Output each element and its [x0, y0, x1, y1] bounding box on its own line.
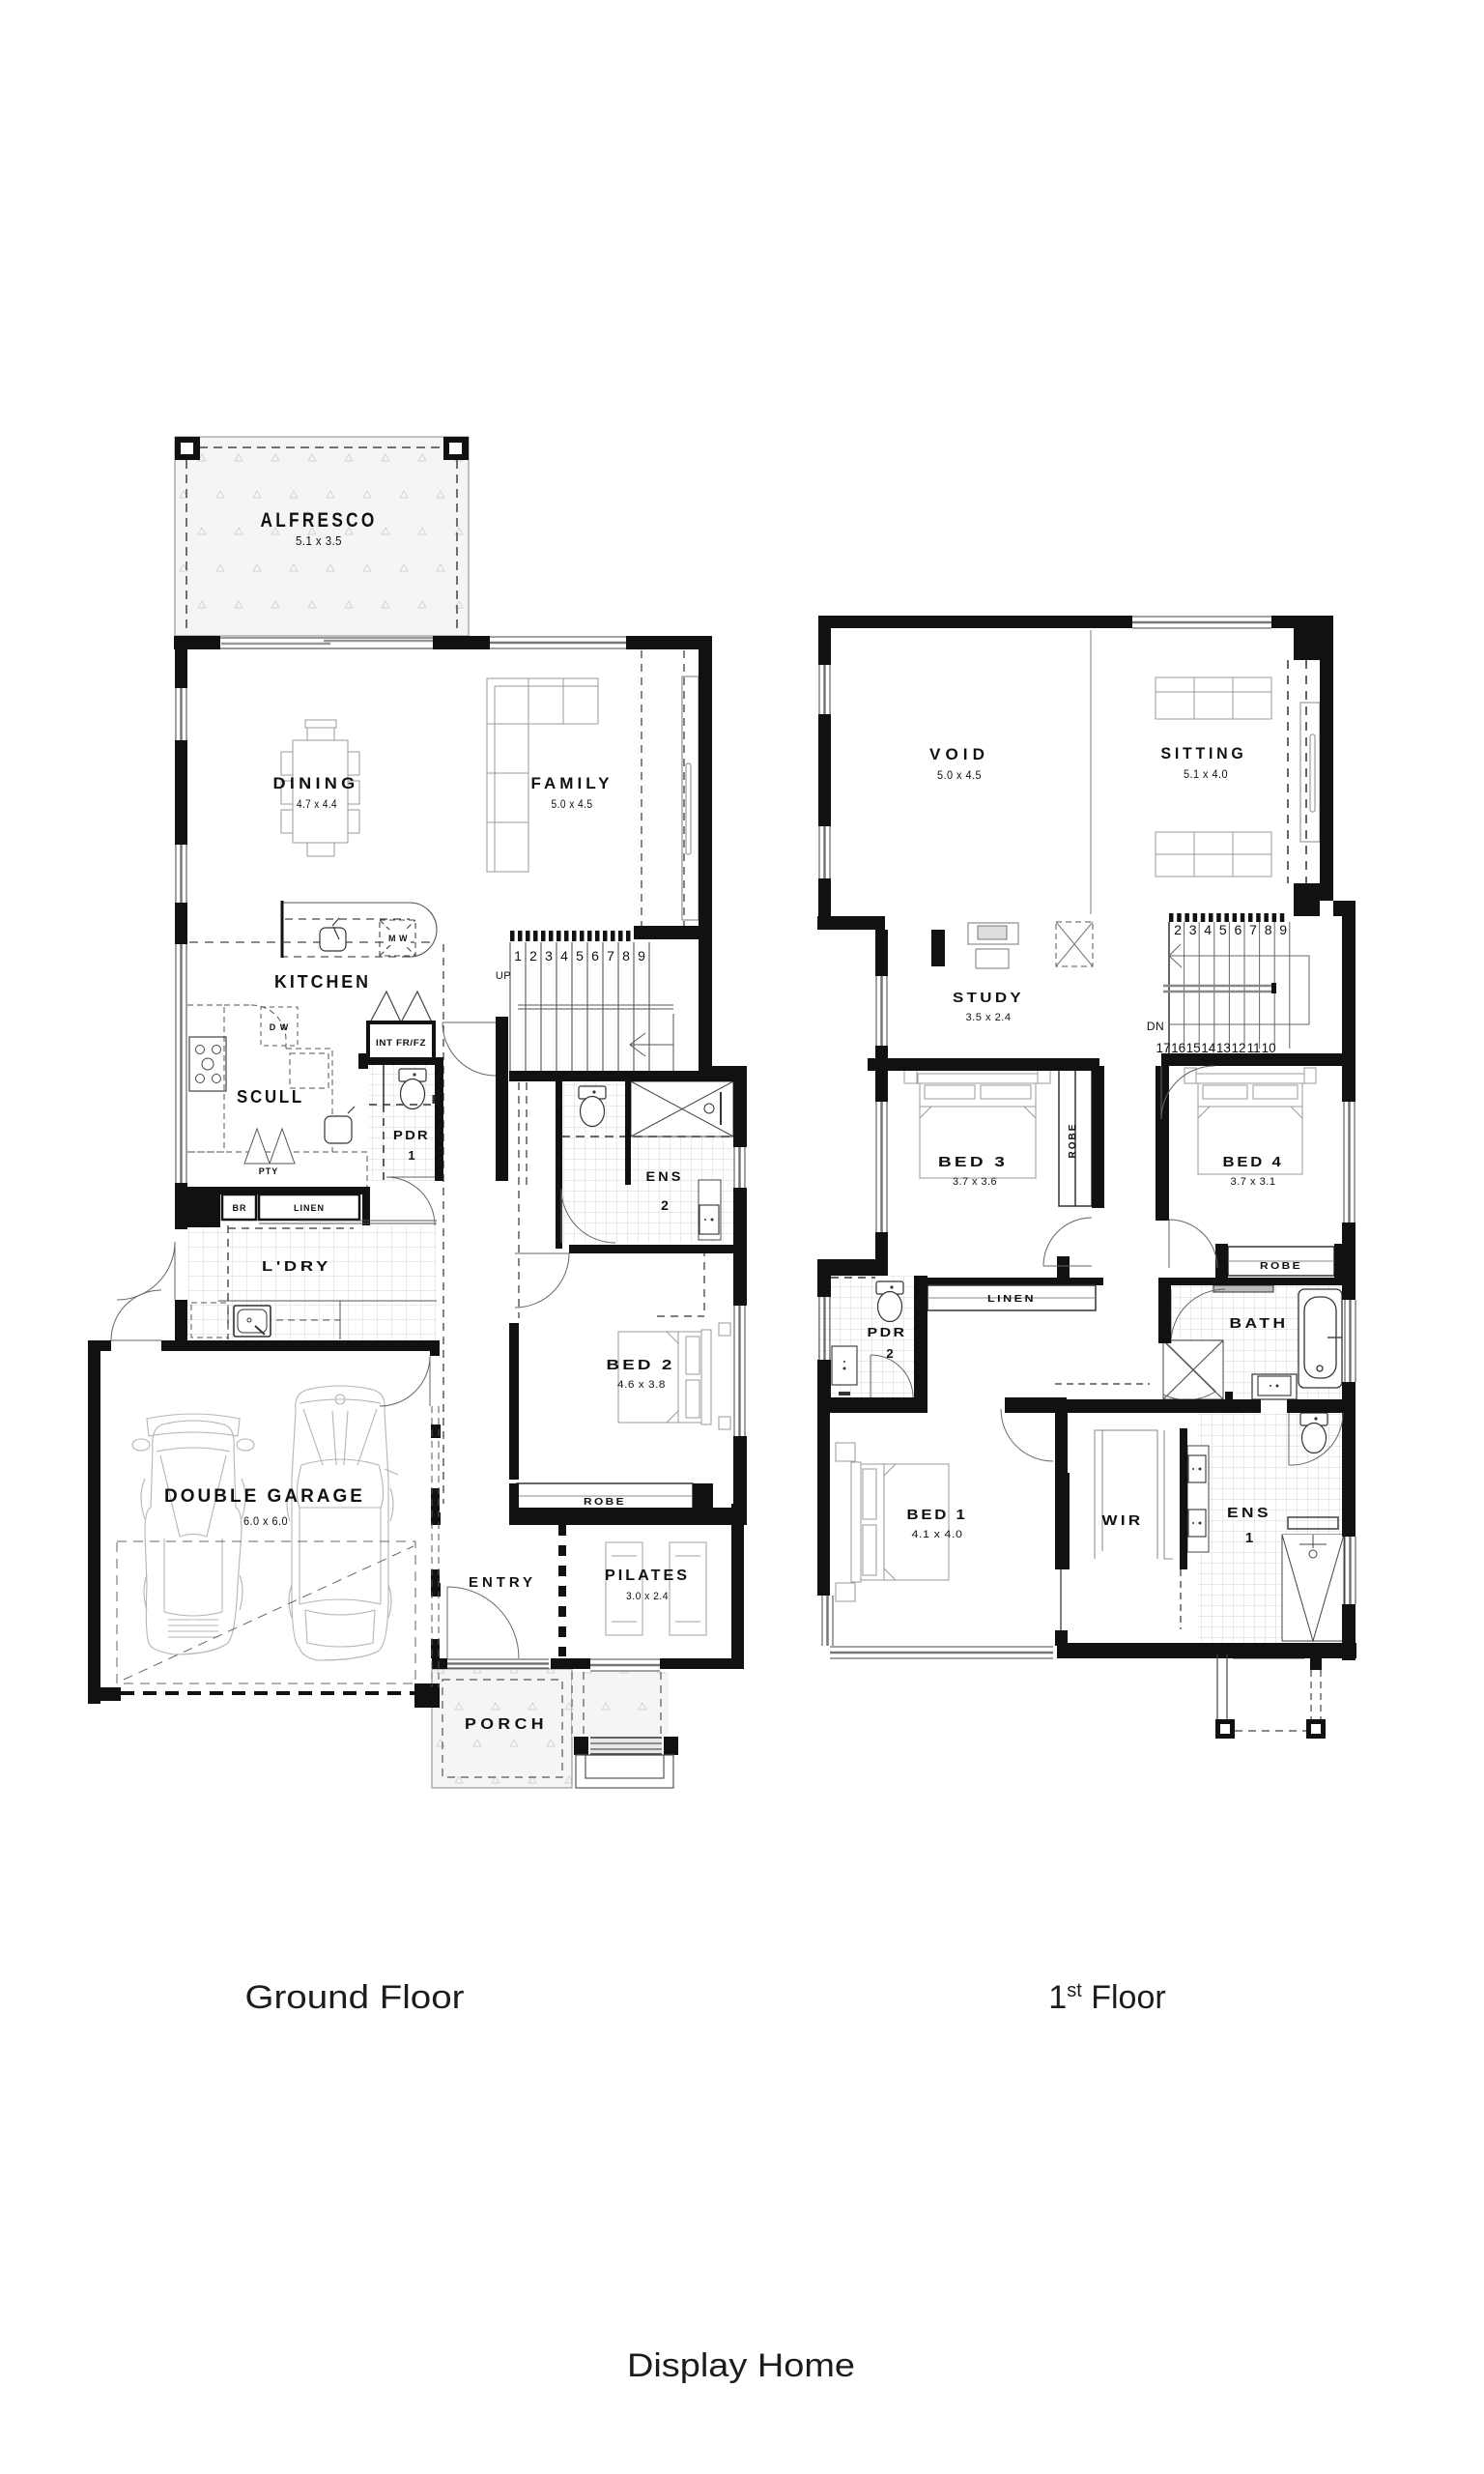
svg-text:11: 11: [1247, 1041, 1261, 1055]
svg-text:2: 2: [1174, 922, 1182, 937]
svg-text:ROBE: ROBE: [1260, 1261, 1302, 1272]
svg-text:LINEN: LINEN: [294, 1203, 325, 1213]
svg-text:FAMILY: FAMILY: [531, 774, 614, 792]
svg-text:5: 5: [1219, 922, 1227, 937]
svg-text:UP: UP: [496, 970, 511, 982]
svg-text:PDR: PDR: [868, 1325, 907, 1339]
svg-text:1: 1: [1245, 1530, 1253, 1546]
svg-text:KITCHEN: KITCHEN: [274, 972, 371, 992]
svg-text:DN: DN: [1147, 1020, 1164, 1033]
svg-text:DINING: DINING: [273, 774, 359, 792]
svg-text:3.7 x 3.6: 3.7 x 3.6: [953, 1176, 997, 1188]
svg-text:L'DRY: L'DRY: [262, 1258, 331, 1275]
svg-text:8: 8: [622, 948, 630, 964]
svg-text:ALFRESCO: ALFRESCO: [261, 509, 378, 532]
svg-text:DOUBLE GARAGE: DOUBLE GARAGE: [164, 1486, 365, 1507]
svg-text:6: 6: [591, 948, 599, 964]
svg-text:BED 1: BED 1: [907, 1507, 968, 1523]
svg-text:14: 14: [1201, 1041, 1216, 1055]
svg-text:STUDY: STUDY: [953, 990, 1024, 1006]
svg-text:ROBE: ROBE: [584, 1497, 626, 1508]
svg-text:SITTING: SITTING: [1161, 744, 1247, 762]
svg-text:VOID: VOID: [929, 745, 989, 763]
svg-text:3: 3: [545, 948, 553, 964]
svg-text:4: 4: [1204, 922, 1212, 937]
svg-text:4: 4: [560, 948, 568, 964]
svg-text:6: 6: [1235, 922, 1242, 937]
svg-text:12: 12: [1231, 1041, 1245, 1055]
svg-text:2: 2: [529, 948, 537, 964]
svg-text:16: 16: [1171, 1041, 1185, 1055]
svg-text:6.0 x 6.0: 6.0 x 6.0: [243, 1514, 288, 1528]
svg-text:9: 9: [1279, 922, 1287, 937]
svg-text:13: 13: [1216, 1041, 1231, 1055]
svg-text:10: 10: [1262, 1041, 1276, 1055]
svg-text:ROBE: ROBE: [1068, 1123, 1078, 1159]
svg-text:PDR: PDR: [393, 1128, 430, 1142]
svg-text:5.1 x 3.5: 5.1 x 3.5: [296, 533, 342, 548]
svg-text:BED 4: BED 4: [1223, 1154, 1284, 1170]
svg-text:5.1 x 4.0: 5.1 x 4.0: [1184, 767, 1228, 781]
svg-text:7: 7: [607, 948, 614, 964]
svg-text:M W: M W: [388, 934, 408, 943]
svg-text:SCULL: SCULL: [237, 1087, 304, 1107]
svg-text:PILATES: PILATES: [605, 1568, 690, 1584]
svg-text:2: 2: [886, 1346, 893, 1361]
svg-text:BATH: BATH: [1230, 1315, 1289, 1332]
svg-text:BED 2: BED 2: [607, 1357, 675, 1373]
svg-text:5.0 x 4.5: 5.0 x 4.5: [937, 768, 982, 782]
svg-text:8: 8: [1265, 922, 1272, 937]
svg-text:BED 3: BED 3: [938, 1154, 1008, 1170]
svg-text:D W: D W: [270, 1022, 290, 1032]
svg-text:ENS: ENS: [646, 1168, 684, 1184]
svg-text:4.1 x 4.0: 4.1 x 4.0: [912, 1529, 963, 1540]
svg-text:1: 1: [514, 948, 522, 964]
svg-text:1: 1: [408, 1148, 414, 1163]
svg-text:7: 7: [1249, 922, 1257, 937]
svg-text:LINEN: LINEN: [987, 1294, 1036, 1305]
svg-text:4.6 x 3.8: 4.6 x 3.8: [617, 1379, 666, 1391]
svg-text:INT FR/FZ: INT FR/FZ: [376, 1038, 426, 1049]
svg-text:1st Floor: 1st Floor: [1048, 1979, 1165, 2016]
svg-text:WIR: WIR: [1102, 1512, 1144, 1529]
svg-text:5.0 x 4.5: 5.0 x 4.5: [552, 797, 593, 811]
svg-text:15: 15: [1186, 1041, 1201, 1055]
svg-text:BR: BR: [233, 1203, 247, 1213]
svg-text:5: 5: [576, 948, 584, 964]
svg-text:3.7 x 3.1: 3.7 x 3.1: [1231, 1176, 1276, 1188]
svg-text:4.7 x 4.4: 4.7 x 4.4: [297, 797, 337, 811]
svg-text:3.5 x 2.4: 3.5 x 2.4: [966, 1012, 1012, 1023]
svg-text:3.0 x 2.4: 3.0 x 2.4: [626, 1591, 669, 1602]
svg-text:ENTRY: ENTRY: [469, 1574, 536, 1591]
svg-text:9: 9: [638, 948, 645, 964]
svg-text:PTY: PTY: [259, 1166, 279, 1176]
svg-text:ENS: ENS: [1227, 1505, 1271, 1521]
svg-text:Ground Floor: Ground Floor: [245, 1979, 465, 2016]
svg-text:Display Home: Display Home: [627, 2347, 855, 2384]
svg-text:PORCH: PORCH: [465, 1716, 548, 1733]
svg-text:17: 17: [1156, 1041, 1170, 1055]
svg-text:3: 3: [1189, 922, 1197, 937]
svg-text:2: 2: [661, 1197, 669, 1213]
